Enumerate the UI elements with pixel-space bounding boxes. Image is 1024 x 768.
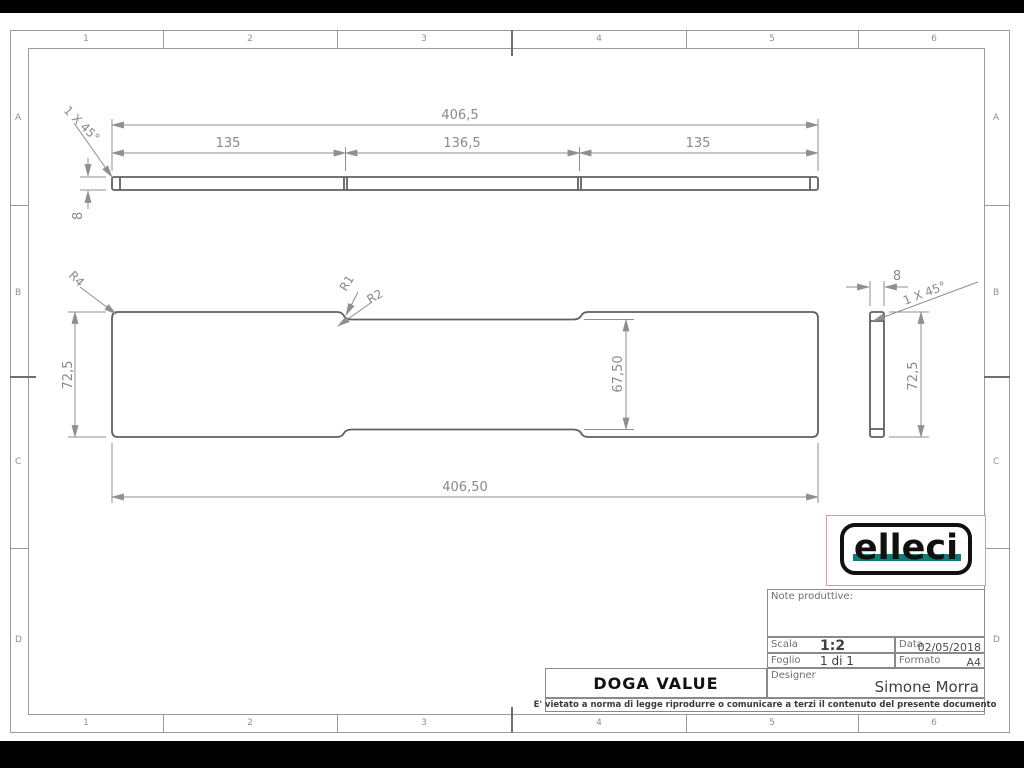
- dim-top-seg-mid: 136,5: [443, 136, 480, 151]
- formato-label: Formato: [899, 655, 940, 666]
- dim-front-inner-height: 67,50: [611, 355, 626, 392]
- foglio-cell: Foglio 1 di 1: [767, 653, 895, 668]
- dim-top-chamfer: 1 X 45°: [61, 103, 103, 145]
- logo-text: elleci: [844, 527, 968, 569]
- side-view: 8 1 X 45° 72,5: [846, 269, 978, 437]
- legal-note: E' vietato a norma di legge riprodurre o…: [546, 699, 984, 711]
- scala-label: Scala: [771, 639, 798, 650]
- part-title-cell: DOGA VALUE: [545, 668, 767, 698]
- part-title: DOGA VALUE: [546, 669, 766, 697]
- designer-value: Simone Morra: [875, 678, 979, 696]
- foglio-label: Foglio: [771, 655, 801, 666]
- data-cell: Data 02/05/2018: [895, 637, 985, 653]
- dim-front-overall: 406,50: [442, 480, 488, 495]
- dim-top-seg-left: 135: [216, 136, 241, 151]
- notes-label: Note produttive:: [771, 591, 853, 602]
- dim-front-r2: R2: [365, 286, 386, 306]
- dim-top-thickness: 8: [71, 212, 86, 220]
- dim-top-seg-right: 135: [686, 136, 711, 151]
- dim-front-r4: R4: [66, 268, 87, 289]
- dim-front-r1: R1: [337, 273, 357, 294]
- scala-cell: Scala 1:2: [767, 637, 895, 653]
- designer-label: Designer: [771, 670, 816, 681]
- designer-cell: Designer Simone Morra: [767, 668, 985, 698]
- formato-cell: Formato A4: [895, 653, 985, 668]
- dim-side-width: 8: [893, 269, 901, 284]
- foglio-value: 1 di 1: [820, 654, 854, 668]
- scala-value: 1:2: [820, 638, 845, 654]
- drawing-sheet: 1 2 3 4 5 6 1 2 3 4 5 6 A B C D A B C D: [0, 13, 1024, 741]
- legal-note-cell: E' vietato a norma di legge riprodurre o…: [545, 698, 985, 712]
- logo-box: elleci: [826, 515, 986, 586]
- top-view: 406,5 135 136,5 135 1 X 45° 8: [61, 103, 818, 220]
- dim-side-height: 72,5: [906, 362, 921, 391]
- dim-side-chamfer: 1 X 45°: [901, 279, 948, 308]
- front-view: 72,5 67,50 406,50 R4 R1 R2: [61, 268, 818, 503]
- notes-box: Note produttive:: [767, 589, 985, 637]
- dim-top-overall: 406,5: [441, 108, 478, 123]
- dim-front-height: 72,5: [61, 361, 76, 390]
- elleci-logo: elleci: [840, 523, 972, 575]
